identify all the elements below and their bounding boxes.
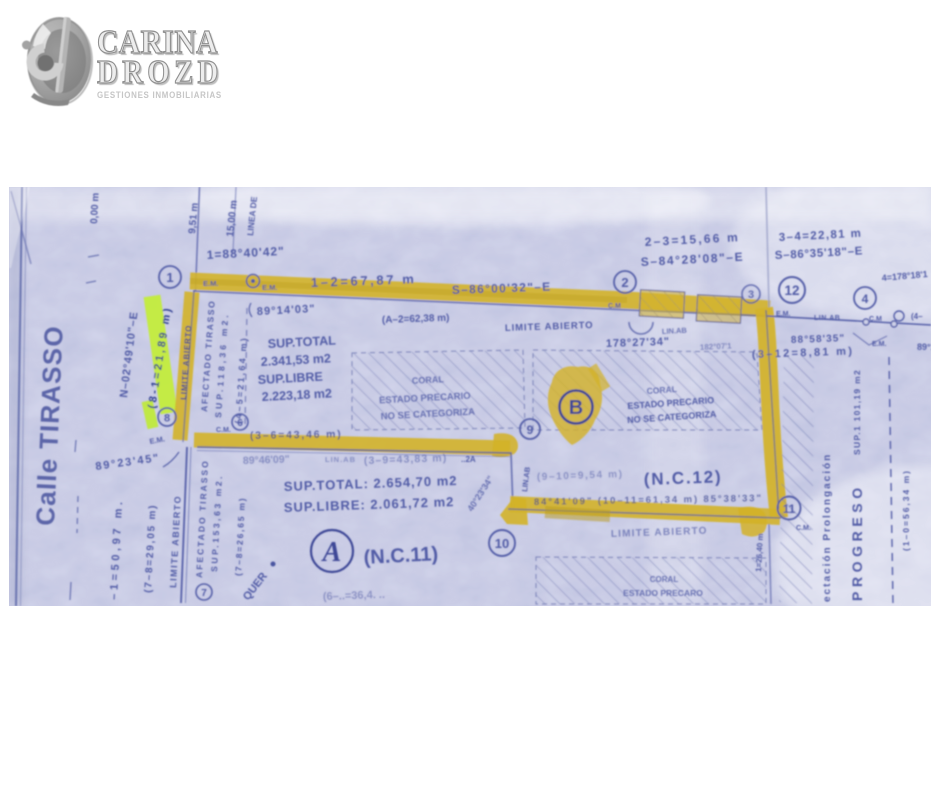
svg-text:178°27'34": 178°27'34" <box>606 336 670 350</box>
svg-text:11: 11 <box>783 502 796 516</box>
svg-text:6: 6 <box>237 418 243 429</box>
svg-text:LIN.AB: LIN.AB <box>814 315 840 322</box>
svg-text:C.M: C.M <box>608 303 621 310</box>
svg-text:89°46'09": 89°46'09" <box>243 453 290 467</box>
svg-text:3: 3 <box>748 289 754 301</box>
svg-text:0,00 m: 0,00 m <box>89 192 102 224</box>
svg-text:PROGRESO: PROGRESO <box>849 483 865 601</box>
svg-text:7: 7 <box>201 588 207 599</box>
svg-text:C.M.: C.M. <box>796 525 811 532</box>
svg-text:10: 10 <box>495 536 509 551</box>
svg-text:E.M.: E.M. <box>262 283 277 292</box>
svg-text:12: 12 <box>784 283 799 298</box>
svg-text:E.M.: E.M. <box>872 341 886 348</box>
svg-text:ESTADO PRECARO: ESTADO PRECARO <box>623 588 703 598</box>
svg-text:A: A <box>321 537 342 568</box>
svg-text:4: 4 <box>862 292 869 306</box>
svg-text:SUP.1 101,19 m2: SUP.1 101,19 m2 <box>852 369 862 455</box>
svg-text:E.M.: E.M. <box>203 279 218 288</box>
svg-text:E.M.: E.M. <box>776 311 790 318</box>
svg-text:LIN.AB: LIN.AB <box>325 455 356 464</box>
svg-text:C.M: C.M <box>869 316 882 323</box>
svg-text:1: 1 <box>166 270 173 285</box>
svg-text:182°07'1: 182°07'1 <box>700 341 733 352</box>
svg-text:(4–: (4– <box>911 312 923 321</box>
svg-text:(1–0=56,34 m): (1–0=56,34 m) <box>901 469 911 551</box>
svg-text:(6–..=36,4. ..: (6–..=36,4. .. <box>323 589 385 603</box>
svg-text:(N.C.11): (N.C.11) <box>363 543 439 569</box>
svg-text:CORAL: CORAL <box>650 575 679 584</box>
svg-text:CORAL: CORAL <box>412 374 445 386</box>
svg-text:9: 9 <box>527 423 534 437</box>
svg-text:B: B <box>569 397 583 419</box>
svg-text:89°1: 89°1 <box>917 342 931 352</box>
svg-text:CORAL: CORAL <box>646 384 677 396</box>
svg-text:88°58'35": 88°58'35" <box>791 333 846 346</box>
svg-text:2: 2 <box>621 275 628 290</box>
svg-text:(3–6=43,46 m): (3–6=43,46 m) <box>250 428 343 442</box>
svg-text:8: 8 <box>164 413 170 425</box>
svg-text:ectación Prolongación: ectación Prolongación <box>822 453 833 602</box>
svg-text:LIN.AB: LIN.AB <box>662 326 688 336</box>
svg-text:(N.C.12): (N.C.12) <box>643 467 722 489</box>
svg-text:C.M.: C.M. <box>216 427 231 434</box>
svg-text:(A–2=62,38 m): (A–2=62,38 m) <box>382 313 450 326</box>
svg-text:..2A: ..2A <box>461 455 476 464</box>
